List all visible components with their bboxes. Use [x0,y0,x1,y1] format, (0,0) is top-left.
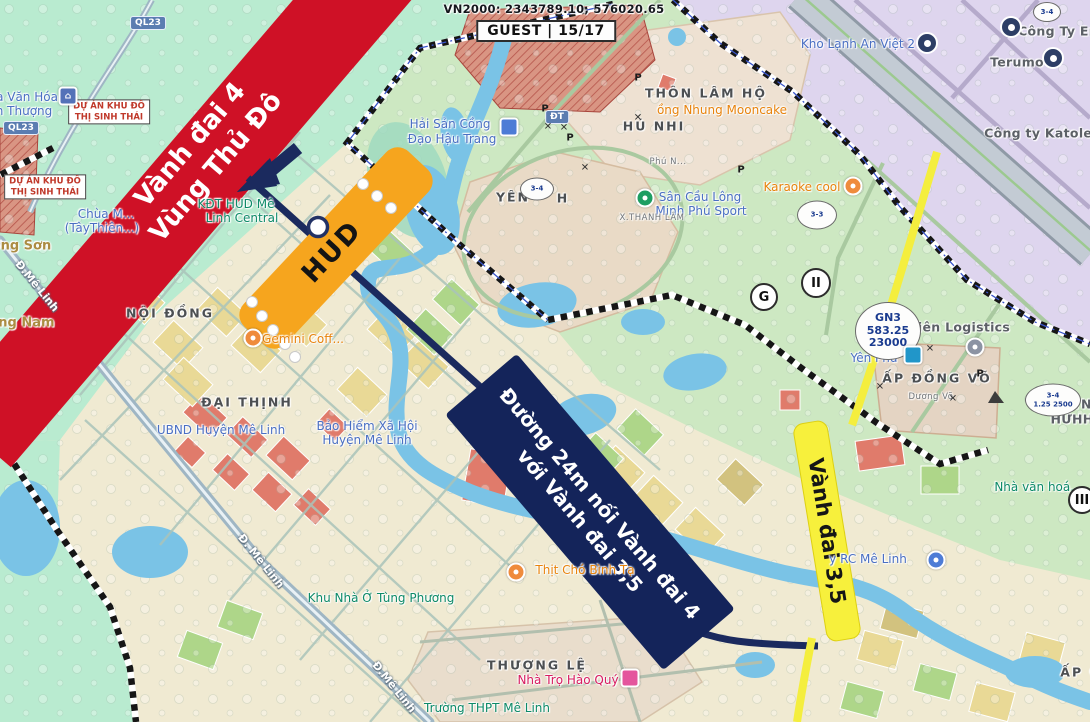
nha-van-hoa-1[interactable]: à Văn Hóa [0,90,58,104]
cong-ty-katolec: Công ty Katolec [984,126,1090,141]
xa-thanh-lam: X.THANH LÂM [620,213,685,223]
du-an-sinh-thai-b: DỰ ÁN KHU ĐÔTHỊ SINH THÁI [4,174,86,199]
phu-n: Phú N... [649,157,686,167]
rc-me-linh[interactable]: y RC Mê Linh [829,552,907,566]
ubnd-huyen-me-linh[interactable]: UBND Huyện Mê Linh [157,423,285,437]
x-mark-5: ✕ [949,394,957,405]
guest-status-box: GUEST | 15/17 [476,20,616,42]
hai-san-2[interactable]: Đạo Hậu Trang [408,132,497,146]
community-house-icon[interactable]: ⌂ [59,87,78,106]
nhung-mooncake[interactable]: ồng Nhung Mooncake [657,103,787,117]
bao-hiem-1[interactable]: Bảo Hiểm Xã Hội [316,419,417,433]
hong-son: Hồng Sơn [0,239,51,254]
roundabout-icon [309,218,328,237]
vn2000-coordinates: VN2000: 2343789.10, 576020.65 [444,2,665,16]
x-mark-3: ✕ [581,163,589,174]
parking-mark-1: P [566,133,573,144]
zone-g-marker: G [750,283,778,311]
ap-g: ẤP G [1060,665,1090,680]
san-cau-long-1[interactable]: Sân Cầu Lông [659,190,742,204]
plot-3-4-east: 3-41.25 2500 [1025,384,1081,417]
kho-lanh-an-viet-2[interactable]: Kho Lạnh An Việt 2 [801,37,915,51]
duong-vo: Dương Võ [909,392,954,402]
parking-mark-4: P [634,73,641,84]
factory-icon-2[interactable] [1042,47,1064,69]
karaoke-icon[interactable] [844,177,863,196]
hai-san-1[interactable]: Hải Sản Cồng [410,117,491,131]
ql23-badge-b: QL23 [3,121,39,135]
ql23-badge-a: QL23 [130,16,166,30]
chua-1[interactable]: Chùa M... [78,207,135,221]
hud-centre-1[interactable]: KĐT HUD Mê [198,197,275,211]
nha-van-hoa-3[interactable]: Nhà văn hoá... [994,480,1081,494]
truong-thpt-me-linh[interactable]: Trường THPT Mê Linh [424,701,550,715]
terumo: Terumo [990,55,1044,70]
ang-nam: ang Nam [0,316,55,331]
ap-dong-vo: ẤP ĐỒNG VÕ [882,371,991,386]
hostel-icon[interactable] [621,669,640,688]
karaoke-cool[interactable]: Karaoke cool [764,180,841,194]
rc-me-linh-icon[interactable] [927,551,946,570]
factory-icon-3[interactable] [916,32,938,54]
parking-mark-3: P [976,369,983,380]
cong-ty-en: Công Ty En [1018,24,1090,39]
logistics-icon[interactable] [966,338,985,357]
x-mark-2: ✕ [634,113,642,124]
nha-tro-hao-quy[interactable]: Nhà Trọ Hào Quý [517,673,618,687]
plot-3-3: 3-3 [797,201,837,230]
dai-thinh: ĐẠI THỊNH [201,395,293,410]
coffee-icon[interactable] [244,329,263,348]
yen-phu-marker-icon[interactable] [904,346,923,365]
hud-centre-2[interactable]: Linh Central [206,211,279,225]
bao-hiem-2[interactable]: Huyện Mê Linh [322,433,411,447]
nha-van-hoa-2[interactable]: n Thượng [0,104,52,118]
thit-cho-binh-ta[interactable]: Thịt Chó Bình Tạ [535,563,634,577]
seafood-marker-icon[interactable] [500,118,519,137]
gemini-coffee[interactable]: Gemini Coff... [262,332,344,346]
parking-mark-2: P [737,165,744,176]
plot-3-4-top: 3-4 [1033,2,1061,22]
chua-2[interactable]: (TâyThiên...) [65,221,139,235]
x-mark-4: ✕ [926,344,934,355]
zone-ii-marker: II [801,268,831,298]
restaurant-icon[interactable] [507,563,526,582]
factory-icon-1[interactable] [1000,16,1022,38]
thuong-le: THƯỢNG LỆ [487,658,587,673]
yen-2: H [557,191,569,206]
parking-mark-0: P [541,104,548,115]
zone-iii-marker: III [1068,486,1090,514]
tung-phuong[interactable]: Khu Nhà Ở Tùng Phương [308,591,455,605]
phu-nhi: HÚ NHI [623,119,686,134]
plot-3-4-yen: 3-4 [520,178,554,201]
x-mark-0: ✕ [544,122,552,133]
x-mark-6: ✕ [876,382,884,393]
badminton-icon[interactable] [636,189,655,208]
thon-lam-ho: THÔN LÂM HỘ [645,86,767,101]
noi-dong: NỘI ĐỒNG [126,306,214,321]
planning-map[interactable]: VN2000: 2343789.10, 576020.65 GUEST | 15… [0,0,1090,722]
du-an-sinh-thai-a: DỰ ÁN KHU ĐÔTHỊ SINH THÁI [68,99,150,124]
